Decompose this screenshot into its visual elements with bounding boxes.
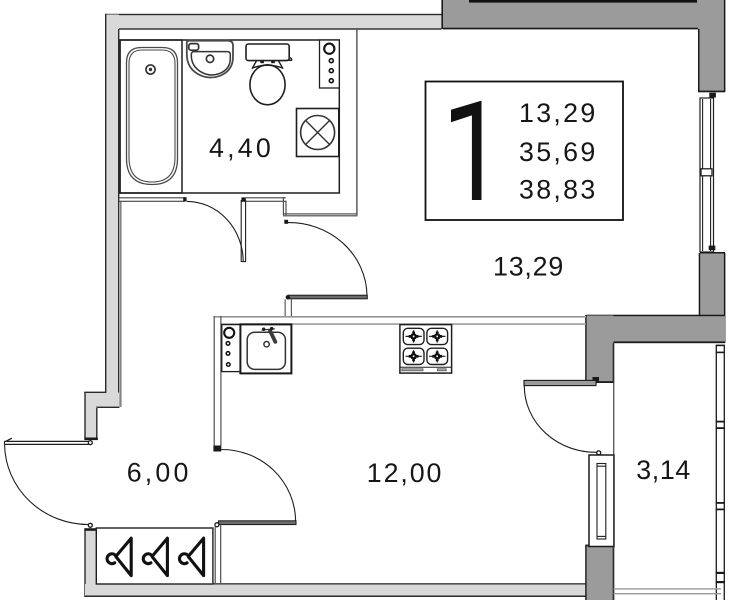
- svg-text:13,29: 13,29: [519, 98, 598, 128]
- svg-text:6,00: 6,00: [127, 458, 192, 488]
- svg-text:12,00: 12,00: [367, 458, 444, 488]
- svg-text:4,40: 4,40: [209, 133, 274, 163]
- svg-text:38,83: 38,83: [519, 174, 598, 204]
- svg-text:13,29: 13,29: [493, 252, 564, 282]
- svg-text:35,69: 35,69: [519, 137, 598, 167]
- svg-text:3,14: 3,14: [636, 455, 691, 485]
